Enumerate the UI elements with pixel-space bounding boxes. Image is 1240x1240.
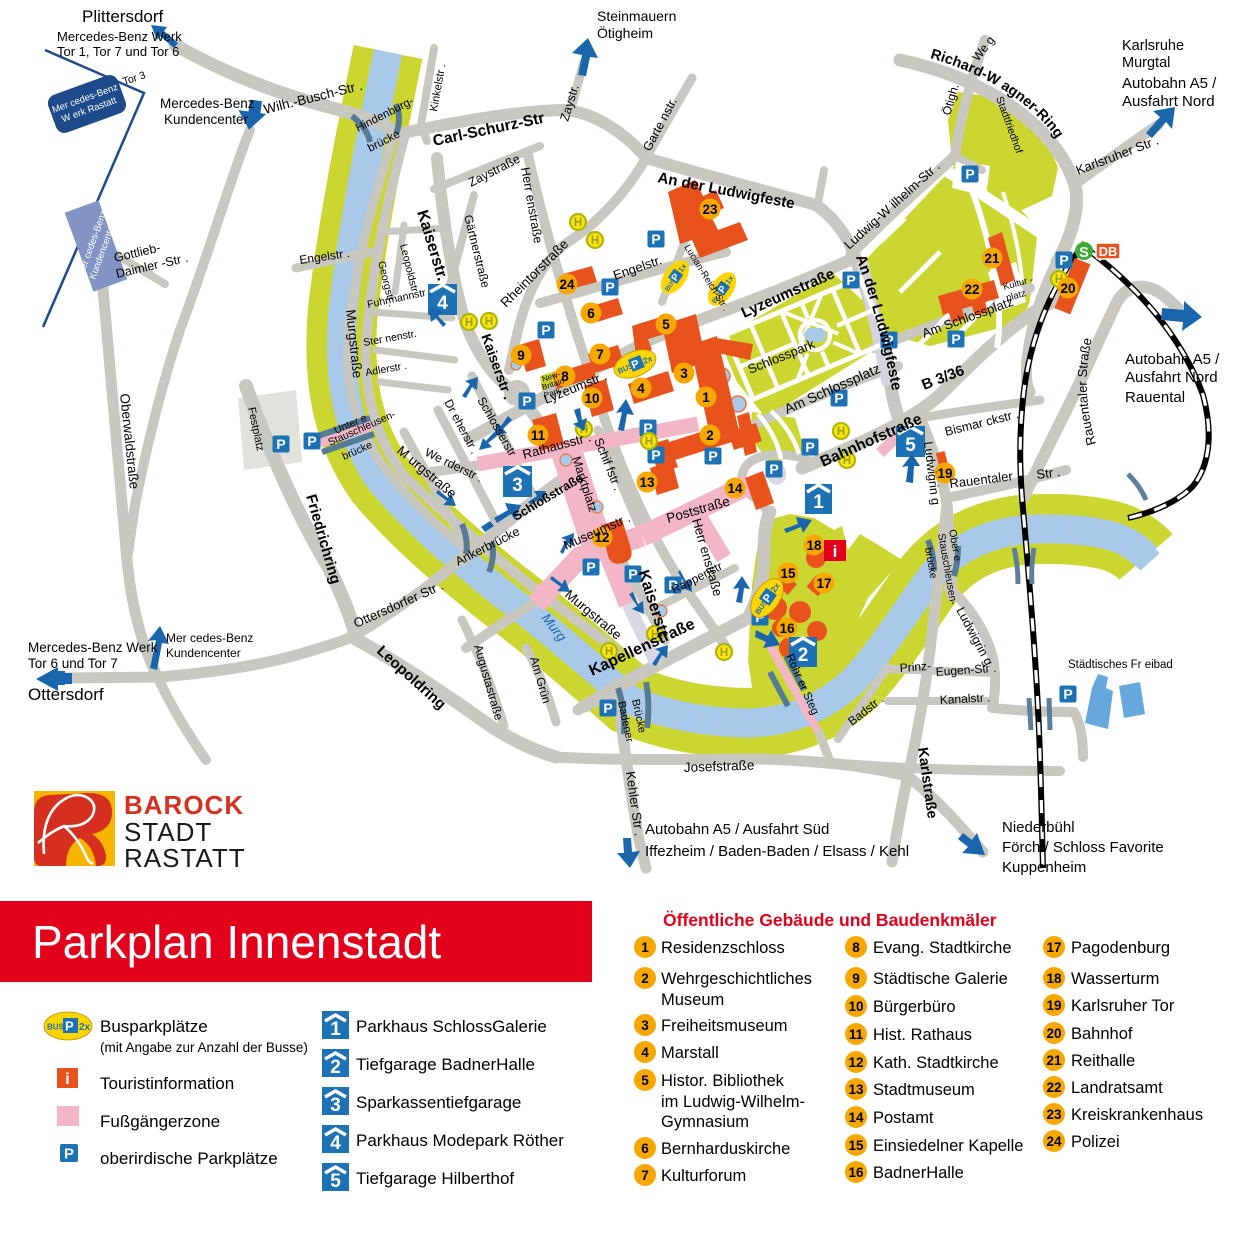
svg-text:Karlsruher Tor: Karlsruher Tor <box>1071 997 1175 1015</box>
svg-text:15: 15 <box>848 1138 864 1153</box>
svg-text:Kuppenheim: Kuppenheim <box>1002 859 1086 876</box>
svg-text:Stadtmuseum: Stadtmuseum <box>873 1081 975 1099</box>
svg-text:Städtische Galerie: Städtische Galerie <box>873 970 1008 988</box>
svg-text:Parkplan Innenstadt: Parkplan Innenstadt <box>32 916 441 968</box>
svg-text:19: 19 <box>1046 998 1061 1013</box>
svg-text:7: 7 <box>641 1168 649 1183</box>
svg-text:Wehrgeschichtliches: Wehrgeschichtliches <box>661 970 812 988</box>
svg-text:Ausfahrt Nord: Ausfahrt Nord <box>1125 369 1218 386</box>
svg-text:21: 21 <box>984 251 1000 266</box>
svg-text:9: 9 <box>852 971 860 986</box>
svg-text:1: 1 <box>702 390 710 405</box>
svg-text:3: 3 <box>330 1095 341 1116</box>
svg-text:Bernharduskirche: Bernharduskirche <box>661 1140 790 1158</box>
svg-text:Sparkassentiefgarage: Sparkassentiefgarage <box>356 1093 521 1112</box>
svg-text:Pagodenburg: Pagodenburg <box>1071 939 1170 957</box>
svg-text:BadnerHalle: BadnerHalle <box>873 1164 964 1182</box>
svg-text:8: 8 <box>852 940 860 955</box>
svg-text:oberirdische Parkplätze: oberirdische Parkplätze <box>100 1149 278 1168</box>
svg-text:P: P <box>65 1019 74 1034</box>
svg-text:DB: DB <box>1099 244 1118 259</box>
svg-text:Kanalstr .: Kanalstr . <box>939 690 990 707</box>
svg-text:16: 16 <box>848 1165 864 1180</box>
svg-text:Ottersdorf: Ottersdorf <box>28 685 104 704</box>
svg-text:S: S <box>1079 245 1089 261</box>
svg-text:2x: 2x <box>79 1022 91 1033</box>
svg-text:1: 1 <box>813 492 824 513</box>
svg-text:Mercedes-Benz Werk: Mercedes-Benz Werk <box>28 640 158 655</box>
svg-text:Autobahn A5 /: Autobahn A5 / <box>1122 75 1217 92</box>
svg-text:BUS: BUS <box>47 1023 65 1032</box>
svg-text:12: 12 <box>848 1055 863 1070</box>
svg-text:1: 1 <box>641 940 649 955</box>
svg-text:Förch / Schloss Favorite: Förch / Schloss Favorite <box>1002 839 1164 856</box>
svg-text:Kreiskrankenhaus: Kreiskrankenhaus <box>1071 1106 1203 1124</box>
svg-text:Steinmauern: Steinmauern <box>597 8 676 24</box>
svg-text:Reithalle: Reithalle <box>1071 1052 1135 1070</box>
svg-text:i: i <box>65 1071 69 1088</box>
svg-text:3: 3 <box>641 1018 649 1033</box>
svg-text:3: 3 <box>512 475 523 496</box>
svg-text:3: 3 <box>680 366 688 381</box>
svg-text:Bürgerbüro: Bürgerbüro <box>873 998 956 1016</box>
svg-text:15: 15 <box>780 566 796 581</box>
svg-text:14: 14 <box>848 1110 864 1125</box>
svg-text:Kulturforum: Kulturforum <box>661 1167 746 1185</box>
svg-text:Tiefgarage BadnerHalle: Tiefgarage BadnerHalle <box>356 1055 535 1074</box>
svg-text:4: 4 <box>637 381 645 396</box>
svg-text:Bahnhof: Bahnhof <box>1071 1025 1133 1043</box>
svg-text:Autobahn A5 /: Autobahn A5 / <box>1125 351 1220 368</box>
svg-text:Karlsruhe: Karlsruhe <box>1122 38 1184 54</box>
svg-text:6: 6 <box>587 306 595 321</box>
svg-text:Kundencenter: Kundencenter <box>164 112 249 127</box>
svg-text:2: 2 <box>330 1057 341 1078</box>
svg-text:Wasserturm: Wasserturm <box>1071 970 1159 988</box>
svg-text:Histor. Bibliothek: Histor. Bibliothek <box>661 1072 785 1090</box>
svg-text:BAROCK: BAROCK <box>124 790 244 820</box>
svg-text:Niederbühl: Niederbühl <box>1002 819 1075 836</box>
svg-text:Iffezheim / Baden-Baden / Elsa: Iffezheim / Baden-Baden / Elsass / Kehl <box>645 843 909 860</box>
svg-text:Polizei: Polizei <box>1071 1133 1120 1151</box>
svg-text:Str .: Str . <box>1036 464 1061 482</box>
svg-text:Freiheitsmuseum: Freiheitsmuseum <box>661 1017 788 1035</box>
svg-text:Josefstraße: Josefstraße <box>684 758 755 775</box>
svg-text:6: 6 <box>641 1141 649 1156</box>
svg-text:Hist. Rathaus: Hist. Rathaus <box>873 1026 972 1044</box>
svg-text:Touristinformation: Touristinformation <box>100 1074 234 1093</box>
svg-text:Museum: Museum <box>661 991 724 1009</box>
svg-text:23: 23 <box>1046 1107 1062 1122</box>
svg-text:16: 16 <box>779 621 795 636</box>
svg-text:Ötigheim: Ötigheim <box>597 24 653 41</box>
svg-text:21: 21 <box>1046 1053 1062 1068</box>
svg-text:Autobahn A5 / Ausfahrt Süd: Autobahn A5 / Ausfahrt Süd <box>645 821 829 838</box>
svg-text:Ausfahrt Nord: Ausfahrt Nord <box>1122 93 1215 110</box>
svg-text:10: 10 <box>848 999 863 1014</box>
svg-text:Mercedes-Benz Werk: Mercedes-Benz Werk <box>57 29 182 44</box>
svg-text:17: 17 <box>1046 940 1061 955</box>
svg-text:4: 4 <box>330 1133 341 1154</box>
svg-text:Landratsamt: Landratsamt <box>1071 1079 1163 1097</box>
svg-text:Öffentliche Gebäude und Bauden: Öffentliche Gebäude und Baudenkmäler <box>663 910 997 930</box>
svg-text:13: 13 <box>848 1082 864 1097</box>
svg-text:4: 4 <box>641 1045 649 1060</box>
svg-text:i: i <box>833 542 838 561</box>
svg-text:24: 24 <box>1046 1134 1062 1149</box>
svg-text:13: 13 <box>639 475 655 490</box>
svg-text:1: 1 <box>330 1019 341 1040</box>
svg-text:20: 20 <box>1046 1026 1061 1041</box>
svg-text:5: 5 <box>905 435 916 456</box>
svg-text:17: 17 <box>816 576 831 591</box>
svg-text:Einsiedelner Kapelle: Einsiedelner Kapelle <box>873 1137 1023 1155</box>
svg-text:5: 5 <box>662 317 670 332</box>
svg-text:22: 22 <box>964 282 979 297</box>
svg-text:RASTATT: RASTATT <box>124 843 246 873</box>
svg-text:10: 10 <box>584 391 599 406</box>
svg-text:20: 20 <box>1060 281 1075 296</box>
svg-text:Parkhaus Modepark Röther: Parkhaus Modepark Röther <box>356 1131 564 1150</box>
svg-text:7: 7 <box>596 347 604 362</box>
svg-text:Tor 6 und Tor 7: Tor 6 und Tor 7 <box>28 656 118 671</box>
svg-text:Kath. Stadtkirche: Kath. Stadtkirche <box>873 1054 999 1072</box>
svg-text:Tiefgarage Hilberthof: Tiefgarage Hilberthof <box>356 1169 514 1188</box>
svg-text:Evang. Stadtkirche: Evang. Stadtkirche <box>873 939 1012 957</box>
svg-text:Kundencenter: Kundencenter <box>166 646 241 660</box>
svg-text:2: 2 <box>641 971 649 986</box>
svg-text:Postamt: Postamt <box>873 1109 934 1127</box>
svg-text:2: 2 <box>706 428 714 443</box>
svg-text:14: 14 <box>727 481 743 496</box>
svg-text:Rauental: Rauental <box>1125 389 1185 406</box>
svg-text:18: 18 <box>1046 971 1062 986</box>
svg-text:Prinz-: Prinz- <box>899 659 931 675</box>
svg-text:Residenzschloss: Residenzschloss <box>661 939 785 957</box>
svg-text:Busparkplätze: Busparkplätze <box>100 1017 208 1036</box>
svg-text:Mer cedes-Benz: Mer cedes-Benz <box>166 631 253 645</box>
svg-text:Plittersdorf: Plittersdorf <box>82 7 164 26</box>
svg-text:5: 5 <box>330 1171 341 1192</box>
svg-text:(mit Angabe zur Anzahl der Bus: (mit Angabe zur Anzahl der Busse) <box>100 1040 308 1055</box>
svg-text:24: 24 <box>559 277 575 292</box>
svg-text:9: 9 <box>517 348 525 363</box>
svg-text:Tor 1, Tor 7 und Tor 6: Tor 1, Tor 7 und Tor 6 <box>57 44 179 59</box>
svg-text:Mercedes-Benz: Mercedes-Benz <box>160 96 255 111</box>
svg-text:Fußgängerzone: Fußgängerzone <box>100 1112 220 1131</box>
svg-text:5: 5 <box>641 1073 649 1088</box>
svg-text:11: 11 <box>849 1027 864 1042</box>
svg-text:23: 23 <box>702 202 718 217</box>
svg-text:Parkhaus SchlossGalerie: Parkhaus SchlossGalerie <box>356 1017 547 1036</box>
svg-text:Murgtal: Murgtal <box>1122 55 1170 71</box>
svg-text:Marstall: Marstall <box>661 1044 719 1062</box>
svg-text:22: 22 <box>1046 1080 1061 1095</box>
svg-text:18: 18 <box>806 538 822 553</box>
svg-text:P: P <box>64 1146 74 1163</box>
svg-text:im Ludwig-Wilhelm-: im Ludwig-Wilhelm- <box>661 1093 805 1111</box>
svg-text:Städtisches Fr eibad: Städtisches Fr eibad <box>1068 659 1173 671</box>
svg-text:Gymnasium: Gymnasium <box>661 1113 749 1131</box>
